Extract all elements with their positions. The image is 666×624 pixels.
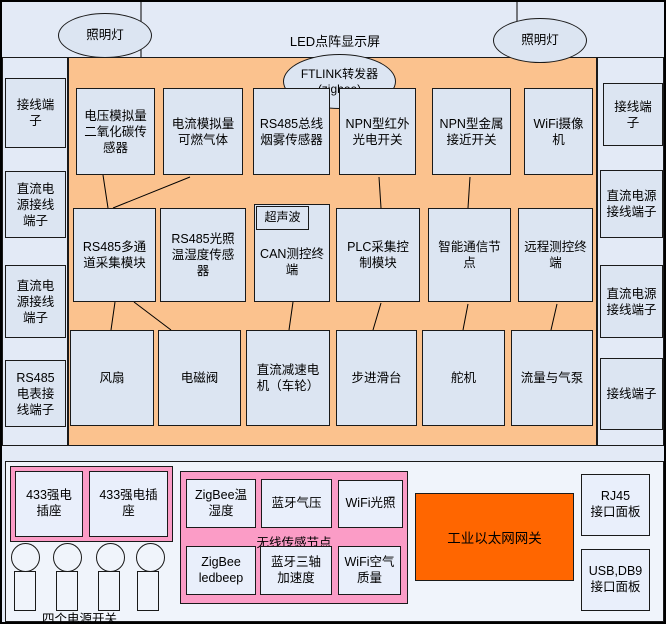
power-switch-2-knob [53,543,82,572]
ultrasonic-tag-label: 超声波 [264,210,300,225]
module-flow-pump-label: 流量与气泵 [521,370,584,386]
node-wifi-light: WiFi光照 [338,480,403,528]
module-smoke-sensor: RS485总线烟雾传感器 [253,88,330,175]
module-photo-switch: NPN型红外光电开关 [339,88,416,175]
right-terminal-3-label: 直流电源接线端子 [606,286,657,318]
node-bt-pressure-label: 蓝牙气压 [271,496,321,512]
module-rs485-multichannel: RS485多通道采集模块 [73,208,156,302]
node-bt-accel-label: 蓝牙三轴加速度 [265,555,327,586]
power-switch-3-knob [96,543,125,572]
left-terminal-3-label: 直流电源接线端子 [11,278,60,326]
socket-433-2-label: 433强电插座 [94,488,163,519]
module-remote-terminal: 远程测控终端 [518,208,593,302]
module-solenoid-valve-label: 电磁阀 [181,370,219,386]
module-fan: 风扇 [70,330,154,426]
module-proximity-switch-label: NPN型金属接近开关 [438,116,505,148]
left-terminal-2-label: 直流电源接线端子 [11,181,60,229]
node-bt-pressure: 蓝牙气压 [261,479,332,528]
socket-433-1-label: 433强电插座 [20,488,78,519]
module-wifi-camera-label: WiFi摄像机 [530,116,587,148]
lamp-left: 照明灯 [58,13,152,58]
module-smart-comm-node: 智能通信节点 [428,208,511,302]
module-co2-sensor: 电压模拟量二氧化碳传感器 [76,88,155,175]
lab-board-diagram: LED点阵显示屏 照明灯 照明灯 FTLINK转发器 (zigbee) [0,0,666,624]
module-plc-label: PLC采集控制模块 [342,239,414,271]
module-rs485-multichannel-label: RS485多通道采集模块 [79,239,150,271]
usb-db9-panel: USB,DB9 接口面板 [581,549,650,611]
power-switches-label-text: 四个电源开关 [42,612,117,624]
node-zigbee-temp: ZigBee温湿度 [186,479,256,528]
socket-433-1: 433强电插座 [15,471,83,537]
node-wifi-light-label: WiFi光照 [346,496,396,512]
power-switch-2-body [56,571,78,611]
node-zigbee-temp-label: ZigBee温湿度 [191,488,251,519]
module-stepper-slide-label: 步进滑台 [351,370,401,386]
module-can-terminal-label: CAN测控终端 [260,228,324,278]
module-plc: PLC采集控制模块 [336,208,420,302]
module-gas-sensor-label: 电流模拟量可燃气体 [169,116,237,148]
lamp-right: 照明灯 [493,18,587,63]
rj45-panel-label: RJ45 接口面板 [590,489,640,520]
module-flow-pump: 流量与气泵 [511,330,593,426]
node-zigbee-ledbeep-label: ZigBee ledbeep [191,555,251,586]
lamp-right-label: 照明灯 [521,33,559,48]
module-servo-label: 舵机 [451,370,476,386]
left-terminal-1: 接线端子 [5,78,66,148]
rj45-panel: RJ45 接口面板 [581,474,650,536]
module-rs485-light-temp: RS485光照温湿度传感器 [160,208,246,302]
module-smoke-sensor-label: RS485总线烟雾传感器 [259,116,324,148]
right-terminal-1: 接线端子 [603,83,663,146]
power-switch-3-body [98,571,120,611]
module-remote-terminal-label: 远程测控终端 [524,239,587,271]
module-wifi-camera: WiFi摄像机 [524,88,593,175]
left-terminal-3: 直流电源接线端子 [5,265,66,338]
module-proximity-switch: NPN型金属接近开关 [432,88,511,175]
module-solenoid-valve: 电磁阀 [158,330,241,426]
module-co2-sensor-label: 电压模拟量二氧化碳传感器 [82,108,149,156]
module-dc-motor-label: 直流减速电机（车轮） [252,362,324,394]
right-terminal-3: 直流电源接线端子 [600,265,663,338]
node-wifi-air-label: WiFi空气质量 [343,555,396,586]
right-terminal-2: 直流电源接线端子 [600,170,663,238]
module-gas-sensor: 电流模拟量可燃气体 [163,88,243,175]
node-zigbee-ledbeep: ZigBee ledbeep [186,546,256,595]
node-bt-accel: 蓝牙三轴加速度 [260,546,332,595]
module-smart-comm-node-label: 智能通信节点 [434,239,505,271]
module-photo-switch-label: NPN型红外光电开关 [345,116,410,148]
module-rs485-light-temp-label: RS485光照温湿度传感器 [166,231,240,279]
module-stepper-slide: 步进滑台 [336,330,417,426]
right-terminal-1-label: 接线端子 [609,99,657,131]
ethernet-gateway-label: 工业以太网网关 [447,527,542,547]
lamp-left-label: 照明灯 [86,28,124,43]
right-terminal-2-label: 直流电源接线端子 [606,188,657,220]
power-switch-1-knob [11,543,40,572]
socket-433-2: 433强电插座 [89,471,168,537]
power-switch-4-knob [136,543,165,572]
left-terminal-4: RS485电表接线端子 [5,360,66,427]
usb-db9-panel-label: USB,DB9 接口面板 [589,564,643,595]
left-terminal-4-label: RS485电表接线端子 [11,370,60,418]
right-terminal-4-label: 接线端子 [606,386,656,402]
ethernet-gateway: 工业以太网网关 [415,493,574,581]
module-servo: 舵机 [422,330,505,426]
module-dc-motor: 直流减速电机（车轮） [246,330,330,426]
power-switch-4-body [137,571,159,611]
node-wifi-air: WiFi空气质量 [338,546,401,595]
left-terminal-1-label: 接线端子 [11,97,60,129]
power-switches-label: 四个电源开关 [42,608,117,624]
left-terminal-2: 直流电源接线端子 [5,171,66,238]
module-can-terminal: 超声波 CAN测控终端 [254,204,330,302]
ultrasonic-tag: 超声波 [256,206,309,230]
right-terminal-4: 接线端子 [600,358,663,430]
power-switch-1-body [14,571,36,611]
module-fan-label: 风扇 [99,370,124,386]
